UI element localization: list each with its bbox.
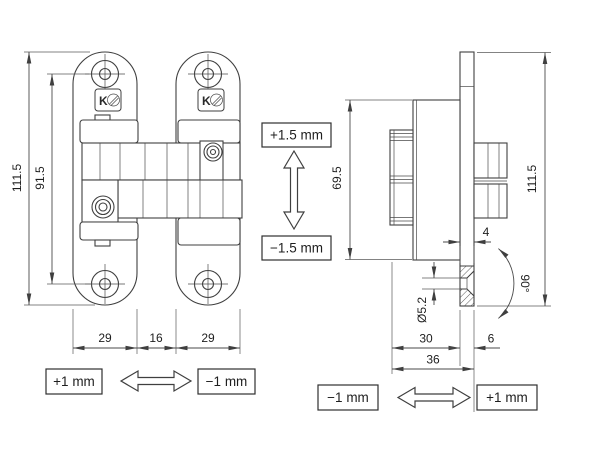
front-dim-widths: 29 16 29	[73, 309, 240, 354]
dim-side-total-height: 111.5	[525, 165, 539, 194]
brand-badge-right: K	[198, 89, 224, 111]
dim-total-depth: 36	[426, 353, 440, 367]
dim-right-plate-width: 29	[201, 331, 215, 345]
dim-front-hole-spacing: 91.5	[33, 166, 47, 190]
brand-letter: K	[99, 94, 108, 108]
dim-flange-depth: 6	[488, 332, 495, 346]
adjust-label-up: +1.5 mm	[270, 128, 323, 143]
lateral-adjust-arrow-front	[121, 371, 191, 391]
shoulder-top-left	[80, 120, 138, 143]
mounting-lugs	[390, 130, 413, 225]
front-lateral-adjust: +1 mm −1 mm	[46, 369, 255, 394]
front-view: K K	[10, 52, 255, 394]
side-geometry	[390, 52, 507, 306]
adjust-label-minus1-front: −1 mm	[206, 374, 248, 389]
adjust-label-plus1-side: +1 mm	[486, 390, 528, 405]
link-row-lower	[118, 180, 242, 218]
dim-countersink-angle: 90°	[518, 274, 532, 292]
hinge-body	[413, 100, 460, 260]
adjust-label-minus1-side: −1 mm	[327, 390, 369, 405]
knuckle-blocks	[474, 143, 507, 218]
brand-badge-left: K	[95, 89, 121, 111]
side-depth-adjust: −1 mm +1 mm	[318, 385, 537, 410]
height-adjust-arrow	[284, 151, 304, 229]
dim-center-gap: 16	[149, 331, 163, 345]
brand-letter: K	[202, 94, 211, 108]
side-dim-countersink-angle: 90°	[498, 249, 532, 319]
depth-adjust-arrow	[398, 388, 470, 408]
shoulder-top-right	[178, 120, 240, 143]
side-dim-total-height: 111.5	[477, 53, 551, 307]
shoulder-bottom-left	[80, 222, 138, 240]
adjust-screw-right	[204, 143, 222, 161]
adjust-label-down: −1.5 mm	[270, 241, 323, 256]
hinge-technical-drawing: K K	[0, 0, 600, 450]
dim-hole-diameter: Ø5.2	[415, 297, 429, 323]
bottom-tab	[95, 240, 110, 246]
dim-body-depth: 30	[419, 332, 433, 346]
adjust-screw-left	[92, 196, 114, 218]
dim-plate-offset: 4	[483, 225, 490, 239]
side-dim-hole-diameter: Ø5.2	[415, 262, 460, 323]
dim-front-total-height: 111.5	[10, 164, 24, 193]
height-adjust: +1.5 mm −1.5 mm	[262, 123, 331, 260]
dim-left-plate-width: 29	[98, 331, 112, 345]
side-view: 69.5 111.5 4 Ø5.2 90°	[318, 52, 551, 412]
adjust-label-plus1-front: +1 mm	[53, 374, 95, 389]
drawing-canvas: K K	[0, 0, 600, 450]
front-mechanism	[80, 115, 242, 246]
shoulder-bottom-right	[178, 218, 240, 245]
dim-side-body-height: 69.5	[330, 166, 344, 190]
